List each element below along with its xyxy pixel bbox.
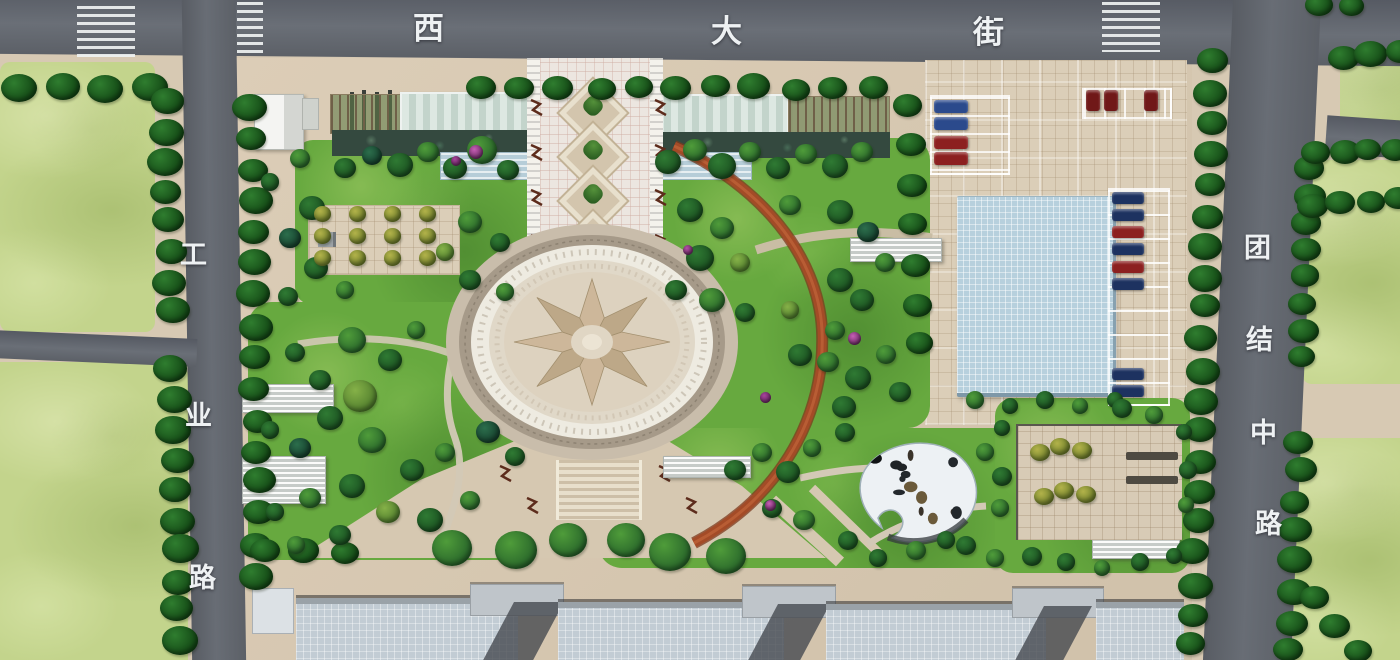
street-label-top-char1: 西 <box>413 14 444 45</box>
tree <box>290 149 310 168</box>
tree <box>460 491 480 510</box>
street-label-left-char3: 路 <box>189 565 216 592</box>
tree <box>1184 325 1217 351</box>
tree <box>238 220 269 244</box>
tree <box>1036 391 1054 408</box>
tree <box>649 533 691 571</box>
flower-bed <box>760 392 771 403</box>
tree <box>655 150 681 175</box>
tree <box>660 76 691 100</box>
tree <box>776 461 800 484</box>
tree <box>1054 482 1074 499</box>
tree <box>859 76 889 99</box>
car <box>1086 90 1100 111</box>
tree <box>495 531 537 569</box>
tree <box>1176 424 1192 439</box>
tree <box>152 207 184 232</box>
tree <box>1276 611 1308 636</box>
tree <box>1022 547 1042 566</box>
tree <box>419 250 436 265</box>
tree <box>710 217 734 240</box>
tree <box>1050 438 1070 455</box>
tree <box>285 343 305 362</box>
street-label-top-char2: 大 <box>711 17 742 48</box>
reflecting-pool <box>957 196 1116 397</box>
tree <box>1197 111 1227 134</box>
tree <box>766 157 790 180</box>
tree <box>1184 388 1218 415</box>
tree <box>822 154 848 179</box>
tree <box>287 536 305 553</box>
tree <box>1179 461 1197 478</box>
tree <box>239 187 273 214</box>
tree <box>314 250 331 265</box>
tree <box>906 541 926 560</box>
tree <box>737 73 770 99</box>
tree <box>706 538 746 574</box>
building-roof <box>1096 602 1184 660</box>
tree <box>1357 191 1385 213</box>
tree <box>625 76 653 98</box>
tree <box>162 534 199 563</box>
tree <box>1280 491 1309 514</box>
tree <box>504 77 533 100</box>
flower-bed <box>848 332 861 345</box>
tree <box>152 270 186 296</box>
car <box>1144 90 1158 111</box>
tree <box>803 439 821 456</box>
tree <box>850 289 874 312</box>
tree <box>1166 548 1182 563</box>
tree <box>476 421 500 444</box>
tree <box>407 321 425 338</box>
tree <box>339 474 365 499</box>
tree <box>677 198 703 223</box>
tree <box>384 250 401 265</box>
tree <box>384 206 401 221</box>
tree <box>436 243 454 260</box>
tree <box>730 253 750 272</box>
tree <box>376 501 400 524</box>
tree <box>343 380 377 412</box>
tree <box>349 228 366 243</box>
tree <box>1131 553 1149 570</box>
tree <box>901 254 929 276</box>
street-label-left-char1: 工 <box>180 242 207 269</box>
tree <box>1300 586 1329 609</box>
tree <box>162 626 198 654</box>
tree <box>1178 604 1208 627</box>
tree <box>362 146 382 165</box>
tree <box>903 294 932 317</box>
tree <box>1283 431 1312 454</box>
tree <box>991 499 1009 516</box>
tree <box>966 391 984 408</box>
tree <box>338 327 366 354</box>
tree <box>1145 406 1163 423</box>
site-plan-canvas: 西 大 街 工 业 路 团 结 中 路 <box>0 0 1400 660</box>
tree <box>490 233 510 252</box>
skylight-spot <box>919 507 924 516</box>
car <box>1112 243 1144 255</box>
tree <box>869 549 887 566</box>
tree <box>1291 238 1321 261</box>
tree <box>1344 640 1372 660</box>
tree <box>161 448 193 473</box>
tree <box>735 303 755 322</box>
street-label-right-char2: 结 <box>1246 327 1273 354</box>
tree <box>1195 173 1225 196</box>
tree <box>458 211 482 234</box>
tree <box>1034 488 1054 505</box>
tree <box>417 508 443 533</box>
tree <box>435 443 455 462</box>
tree <box>992 467 1012 486</box>
tree <box>827 200 853 225</box>
tree <box>1112 399 1132 418</box>
car <box>934 117 968 130</box>
tree <box>1288 319 1319 343</box>
tree <box>781 301 799 318</box>
street-label-right-char1: 团 <box>1244 235 1271 262</box>
tree <box>782 79 810 101</box>
tree <box>261 173 279 190</box>
tree <box>1190 294 1219 317</box>
flower-bed <box>469 145 483 159</box>
skylight-spot <box>893 490 905 496</box>
tree <box>1278 517 1311 543</box>
tree <box>607 523 645 557</box>
tree <box>349 250 366 265</box>
tree <box>994 420 1010 435</box>
tree <box>1291 264 1320 286</box>
courtyard-bench <box>1126 476 1178 484</box>
tree <box>976 443 994 460</box>
street-label-left-char2: 业 <box>185 403 212 430</box>
tree <box>588 78 616 100</box>
tree <box>1030 444 1050 461</box>
building-roof <box>252 588 294 634</box>
tree <box>1325 191 1355 215</box>
car <box>1112 226 1144 238</box>
tree <box>238 377 269 401</box>
tree <box>1339 0 1364 16</box>
tree <box>827 268 853 293</box>
skylight-spot <box>896 463 907 471</box>
skylight-spot <box>916 491 927 504</box>
tree <box>1192 205 1222 229</box>
tree <box>314 206 331 221</box>
tree <box>1094 560 1110 575</box>
car <box>934 152 968 165</box>
tree <box>1002 398 1018 413</box>
tree <box>314 228 331 243</box>
tree <box>1277 546 1312 573</box>
tree <box>1072 442 1092 459</box>
tree <box>708 153 736 180</box>
tree <box>1076 486 1096 503</box>
tree <box>1197 48 1229 73</box>
tree <box>159 477 190 502</box>
car <box>1112 192 1144 204</box>
tree <box>46 73 80 100</box>
skylight-spot <box>951 506 961 519</box>
tree <box>317 406 343 431</box>
flower-bed <box>765 500 776 511</box>
tree <box>898 213 927 235</box>
tree <box>1288 346 1315 367</box>
tree <box>236 280 270 307</box>
tree <box>1354 41 1387 67</box>
tree <box>1072 398 1088 413</box>
street-label-right-char4: 路 <box>1255 511 1282 538</box>
skylight-spot <box>928 513 938 525</box>
tree <box>876 345 896 364</box>
tree <box>236 127 266 150</box>
tree <box>1288 293 1317 315</box>
tree <box>378 349 402 372</box>
skylight-spot <box>904 481 918 492</box>
tree <box>1188 233 1223 260</box>
tree <box>1297 194 1328 218</box>
tree <box>278 287 298 306</box>
tree <box>261 421 279 438</box>
tree <box>832 396 856 419</box>
car <box>1104 90 1118 111</box>
tree <box>466 76 495 99</box>
tree <box>752 443 772 462</box>
car <box>1112 261 1144 273</box>
tree <box>986 549 1004 566</box>
tree <box>788 344 812 367</box>
skylight-spot <box>948 457 958 467</box>
tree <box>1354 139 1381 160</box>
tree <box>387 153 413 178</box>
tree <box>549 523 587 557</box>
skylight-spot <box>908 450 914 461</box>
car <box>1112 278 1144 290</box>
tree <box>875 253 895 272</box>
street-label-right-char3: 中 <box>1250 420 1277 447</box>
tree <box>838 531 858 550</box>
tree <box>1176 632 1205 655</box>
tree <box>336 281 354 298</box>
tree <box>432 530 472 566</box>
tree <box>239 345 270 369</box>
car <box>934 136 968 149</box>
tree <box>1 74 37 102</box>
flower-bed <box>451 156 461 166</box>
tree <box>1273 638 1303 660</box>
tree <box>1188 265 1222 292</box>
tree <box>151 88 183 113</box>
tree <box>358 427 386 454</box>
star-center-dot <box>582 334 602 350</box>
tree <box>419 228 436 243</box>
car <box>1112 209 1144 221</box>
tree <box>1301 141 1330 164</box>
street-label-top-char3: 街 <box>973 18 1004 49</box>
skylight-spot <box>899 476 905 482</box>
tree <box>384 228 401 243</box>
tree <box>1178 573 1212 600</box>
tree <box>845 366 871 391</box>
tree <box>699 288 725 313</box>
tree <box>505 447 525 466</box>
tree <box>419 206 436 221</box>
tree <box>937 531 955 548</box>
park-building-annex <box>302 98 319 130</box>
car <box>934 100 968 113</box>
tree <box>1178 497 1194 512</box>
courtyard-bench <box>1126 452 1178 460</box>
tree <box>906 332 933 353</box>
tree <box>250 539 280 562</box>
flower-bed <box>683 245 693 255</box>
tree <box>87 75 123 103</box>
tree <box>496 283 514 300</box>
tree <box>147 148 183 176</box>
tree <box>893 94 922 117</box>
tree <box>1057 553 1075 570</box>
tree <box>160 595 193 621</box>
tree <box>542 76 573 100</box>
tree <box>956 536 976 555</box>
tree <box>835 423 855 442</box>
tree <box>1319 614 1350 638</box>
tree <box>1186 358 1220 384</box>
tree <box>238 249 271 275</box>
car <box>1112 368 1144 380</box>
tree <box>825 321 845 340</box>
tree <box>232 94 267 121</box>
tree <box>400 459 424 482</box>
tree <box>266 503 284 520</box>
tree <box>683 139 707 162</box>
tree <box>241 441 271 464</box>
tree <box>349 206 366 221</box>
